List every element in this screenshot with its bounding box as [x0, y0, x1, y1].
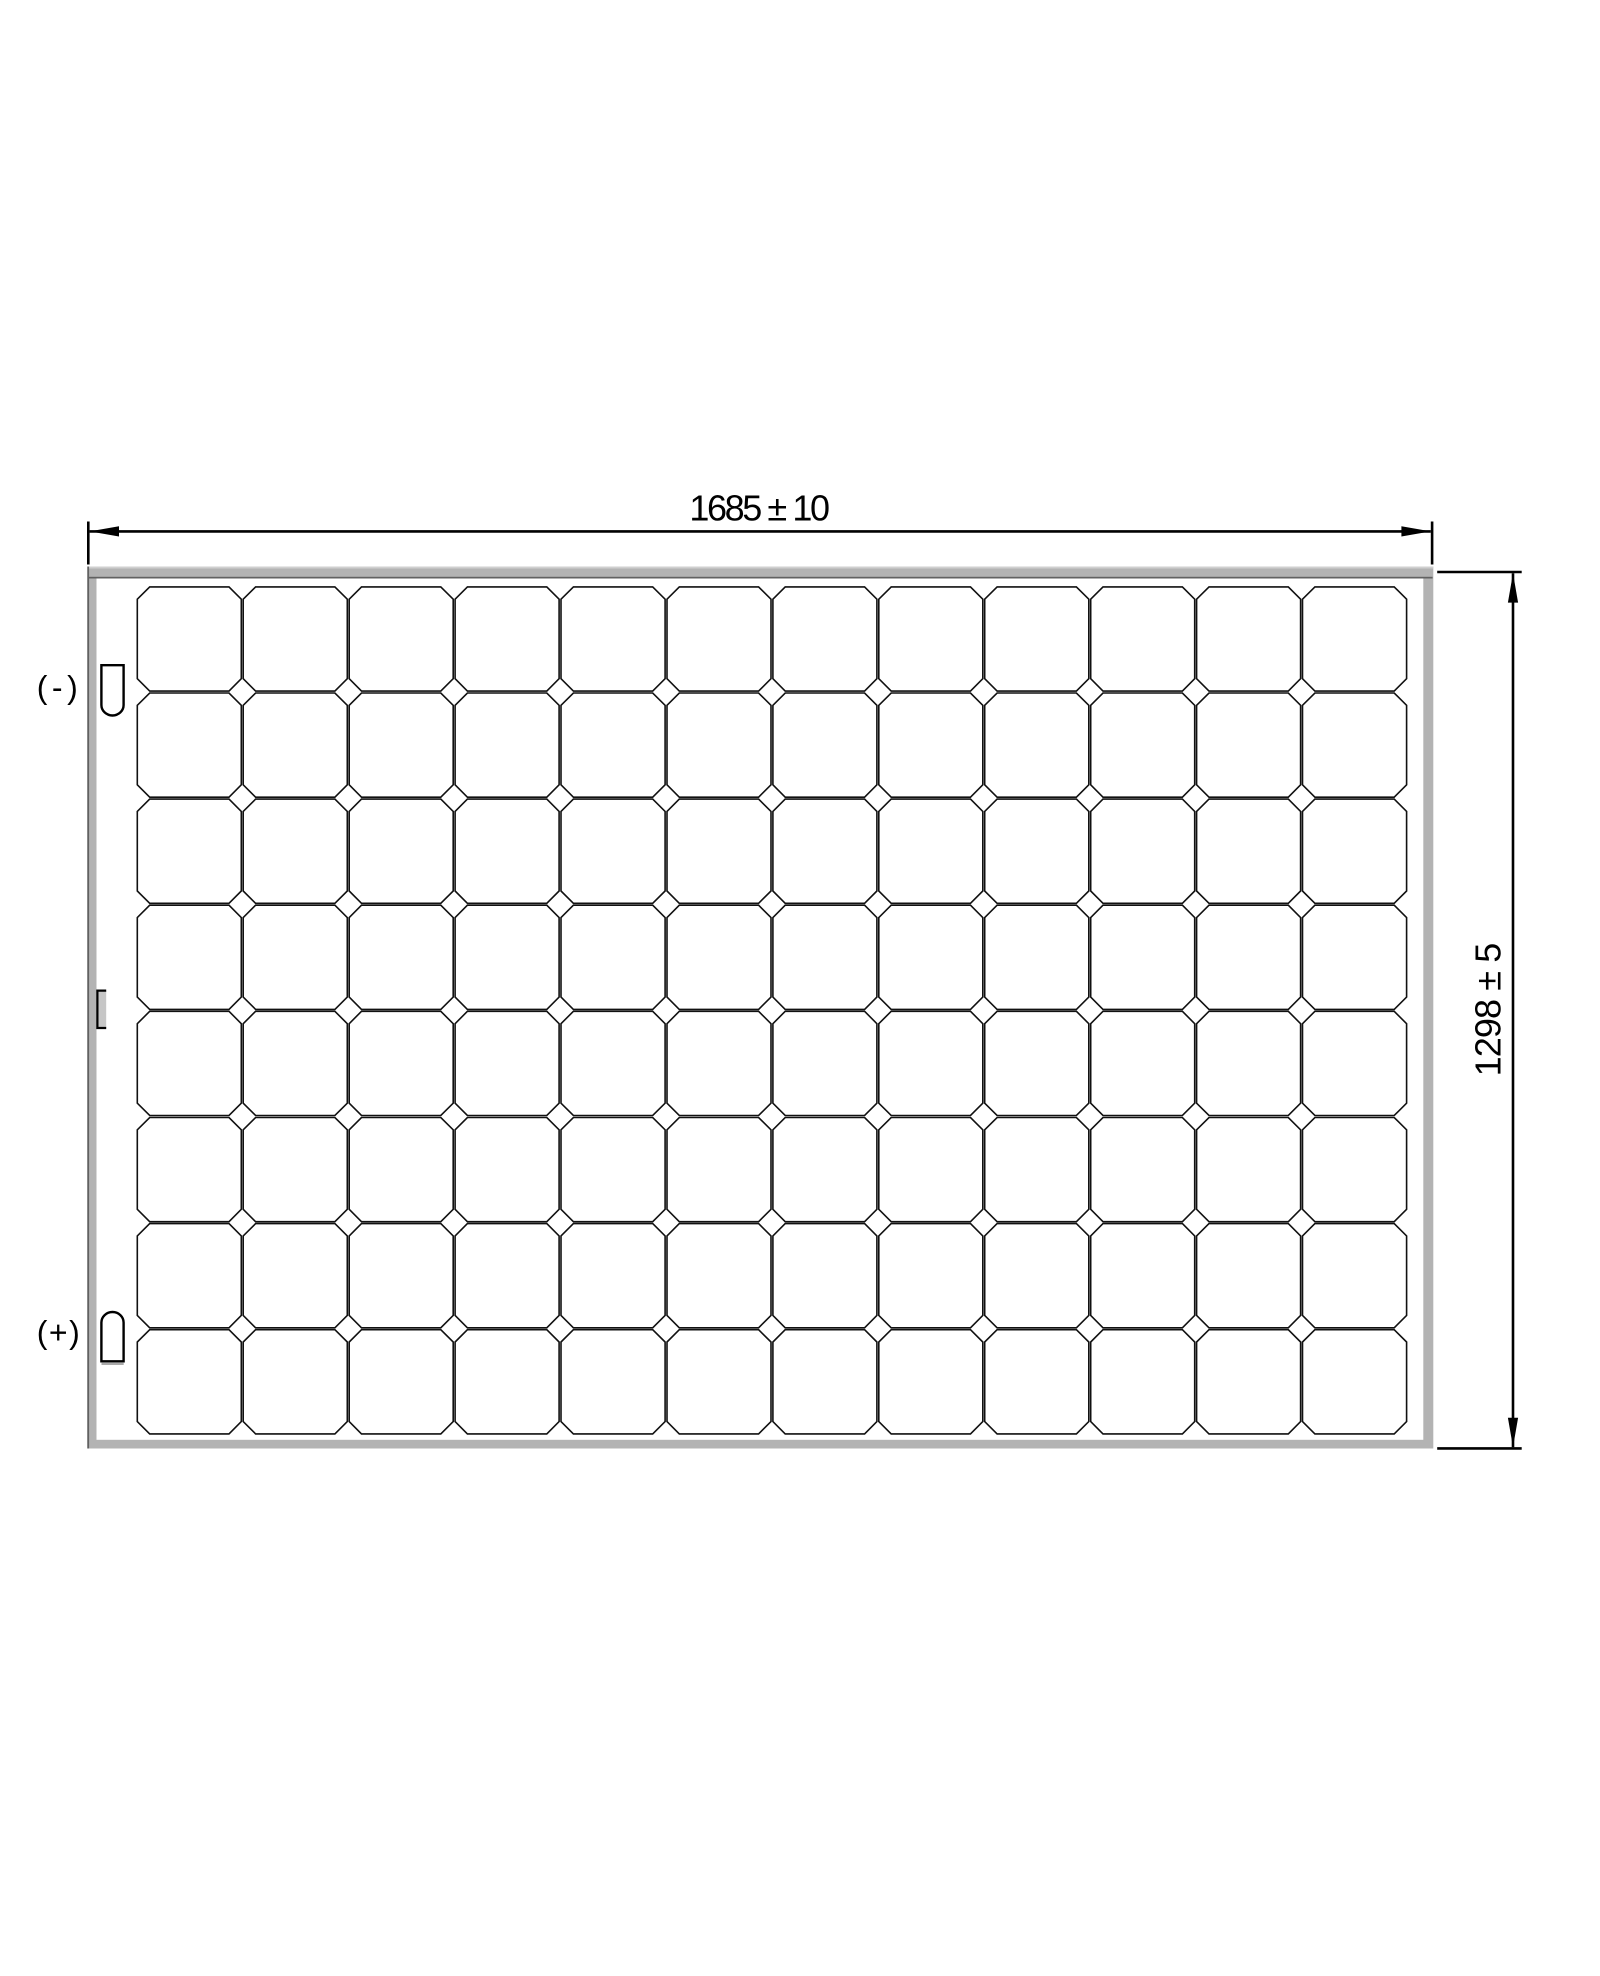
svg-text:1685 ± 10: 1685 ± 10 [689, 488, 829, 529]
svg-text:1298 ± 5: 1298 ± 5 [1468, 944, 1509, 1077]
svg-text:(+): (+) [37, 1314, 82, 1350]
svg-text:(-): (-) [37, 669, 82, 705]
